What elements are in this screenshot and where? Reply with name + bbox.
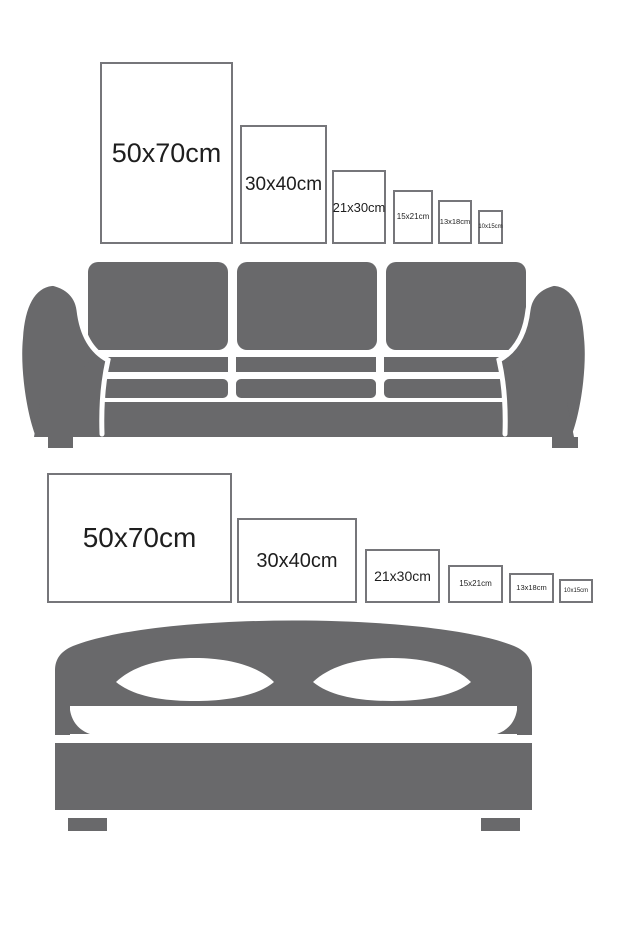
size-guide-infographic: 50x70cm30x40cm21x30cm15x21cm13x18cm10x15… (0, 0, 621, 931)
size-label: 13x18cm (516, 584, 546, 592)
bed-icon (0, 606, 621, 846)
size-label: 50x70cm (83, 524, 197, 552)
size-label: 21x30cm (374, 569, 431, 583)
size-label: 15x21cm (459, 580, 491, 588)
size-frame-21x30cm: 21x30cm (365, 549, 440, 603)
size-frame-13x18cm: 13x18cm (509, 573, 554, 603)
size-frame-10x15cm: 10x15cm (559, 579, 593, 603)
size-label: 30x40cm (256, 551, 337, 571)
size-frame-50x70cm: 50x70cm (47, 473, 232, 603)
size-frame-30x40cm: 30x40cm (237, 518, 357, 603)
size-frame-15x21cm: 15x21cm (448, 565, 503, 603)
size-label: 10x15cm (564, 588, 588, 594)
